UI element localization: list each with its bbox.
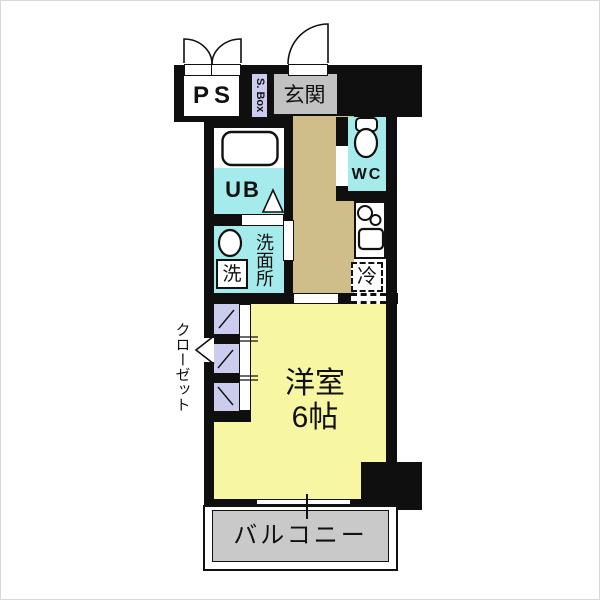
- washroom-label: 洗面所: [254, 228, 274, 292]
- shoe-box-label: S. Box: [250, 73, 269, 118]
- floor-plan-canvas: バルコニー PS S. Box 玄関 UB WC 洗面所 洗 冷 洋室 6帖 ク…: [0, 0, 600, 600]
- closet-partition-block: [214, 334, 239, 344]
- open-boundary-dashed: [351, 293, 386, 304]
- bath-tub-area: [214, 128, 284, 168]
- wc-label: WC: [348, 159, 386, 191]
- washroom-door-opening: [283, 220, 294, 261]
- washer-label: 洗: [216, 259, 248, 289]
- kitchen-counter: [354, 201, 386, 259]
- ps-door-panel: [184, 64, 212, 76]
- closet-floor: [214, 304, 239, 411]
- closet-arrow-gap: [204, 338, 214, 362]
- wall-right: [386, 117, 397, 510]
- wall-corner-block: [334, 65, 422, 117]
- western-room-size: 6帖: [240, 401, 390, 435]
- bath-door-opening: [241, 214, 284, 226]
- unit-bath-label: UB: [218, 171, 268, 209]
- balcony-label: バルコニー: [212, 510, 389, 562]
- double-door-swing-icon: [184, 39, 212, 64]
- double-door-swing-icon: [212, 39, 241, 64]
- room-door-opening: [293, 293, 339, 304]
- entrance-label: 玄関: [272, 75, 337, 115]
- ps-label: PS: [184, 76, 239, 116]
- wall-left: [204, 116, 214, 511]
- ps-door-panel: [211, 64, 241, 76]
- refrigerator-label: 冷: [351, 262, 383, 292]
- entrance-door-swing-icon: [288, 24, 328, 64]
- wall-segment: [204, 114, 293, 129]
- western-room-label: 洋室 6帖: [240, 367, 390, 437]
- wc-door-opening: [336, 146, 348, 186]
- wall-corner-block: [361, 462, 422, 510]
- closet-label: クローゼット: [170, 311, 194, 423]
- closet-partition-block: [214, 373, 239, 383]
- western-room-name: 洋室: [240, 367, 390, 401]
